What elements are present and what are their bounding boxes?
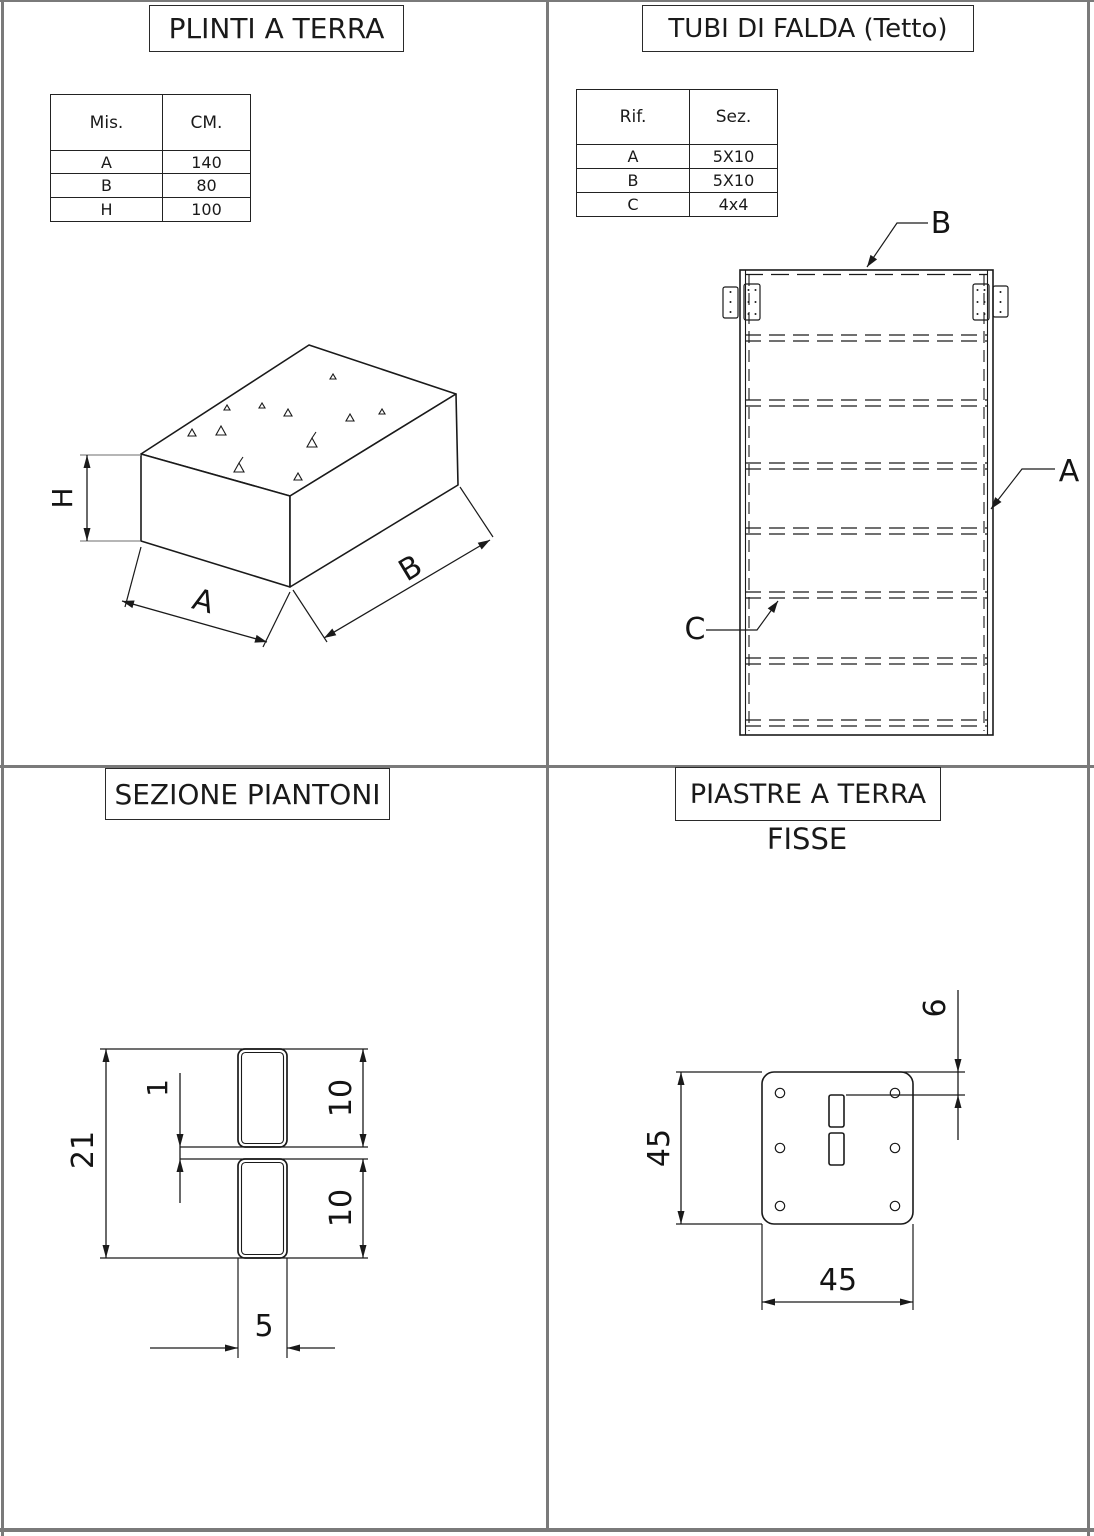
ref-label-c: C (673, 612, 717, 648)
table-cell: 100 (163, 198, 250, 221)
table-cell: A (51, 151, 163, 173)
title-tubi-text: TUBI DI FALDA (Tetto) (668, 14, 947, 44)
ref-label-b: B (919, 206, 963, 242)
roof-frame-drawing (690, 210, 1085, 750)
technical-drawing-sheet: PLINTI A TERRA Mis. CM. A 140 B 80 H 100 (0, 0, 1094, 1536)
table-cell: B (577, 169, 690, 192)
dim-label-1: 1 (140, 1066, 176, 1110)
plate-holes (775, 1088, 899, 1210)
ref-label-a: A (1047, 454, 1091, 490)
dim-label-45-bottom: 45 (816, 1263, 860, 1299)
ground-plate-drawing (640, 985, 980, 1315)
dim-label-45-left: 45 (642, 1126, 678, 1170)
table-plinti: Mis. CM. A 140 B 80 H 100 (50, 94, 251, 222)
table-cell: 140 (163, 151, 250, 173)
table-row: B 5X10 (577, 168, 777, 192)
table-row: Rif. Sez. (577, 90, 777, 144)
table-row: Mis. CM. (51, 95, 250, 150)
table-row: A 5X10 (577, 144, 777, 168)
dimension-tube-10-bottom (360, 1159, 367, 1258)
dim-label-6: 6 (918, 986, 954, 1030)
title-sezione: SEZIONE PIANTONI (105, 768, 390, 820)
title-piastre-text: PIASTRE A TERRA (690, 779, 926, 810)
subtitle-fisse: FISSE (747, 822, 867, 856)
table-cell: A (577, 145, 690, 168)
dim-label-10-bottom: 10 (324, 1186, 360, 1230)
border-left (1, 0, 4, 1536)
title-plinti-text: PLINTI A TERRA (169, 12, 385, 45)
table-cell: B (51, 174, 163, 197)
plinth-isometric-drawing (40, 335, 510, 665)
title-tubi: TUBI DI FALDA (Tetto) (642, 5, 974, 52)
col-header: Rif. (577, 90, 690, 144)
table-row: H 100 (51, 197, 250, 221)
col-header: CM. (163, 95, 250, 150)
dimension-45-left (676, 1072, 762, 1224)
frame-outline (740, 270, 993, 735)
border-right (1087, 0, 1090, 1536)
mounting-brackets (723, 284, 1008, 320)
dimension-h (80, 455, 141, 541)
dim-label-h: H (45, 476, 81, 520)
table-cell: 5X10 (690, 145, 777, 168)
table-cell: H (51, 198, 163, 221)
dim-label-21: 21 (66, 1128, 102, 1172)
table-cell: 80 (163, 174, 250, 197)
title-piastre: PIASTRE A TERRA (675, 767, 941, 821)
cross-members (745, 335, 988, 726)
dim-label-5: 5 (242, 1309, 286, 1345)
dimension-gap-1 (177, 1073, 184, 1203)
col-header: Sez. (690, 90, 777, 144)
title-plinti: PLINTI A TERRA (149, 5, 404, 52)
subtitle-fisse-text: FISSE (767, 822, 847, 856)
leader-a (991, 469, 1055, 509)
table-tubi: Rif. Sez. A 5X10 B 5X10 C 4x4 (576, 89, 778, 217)
plate-slots (829, 1095, 844, 1165)
tube-sections (238, 1049, 287, 1258)
table-row: B 80 (51, 173, 250, 197)
dimension-total-21 (103, 1049, 110, 1258)
table-cell: 5X10 (690, 169, 777, 192)
dim-label-10-top: 10 (324, 1076, 360, 1120)
col-header: Mis. (51, 95, 163, 150)
title-sezione-text: SEZIONE PIANTONI (114, 778, 380, 811)
dimension-tube-10-top (360, 1049, 367, 1147)
table-cell: C (577, 193, 690, 216)
table-row: A 140 (51, 150, 250, 173)
